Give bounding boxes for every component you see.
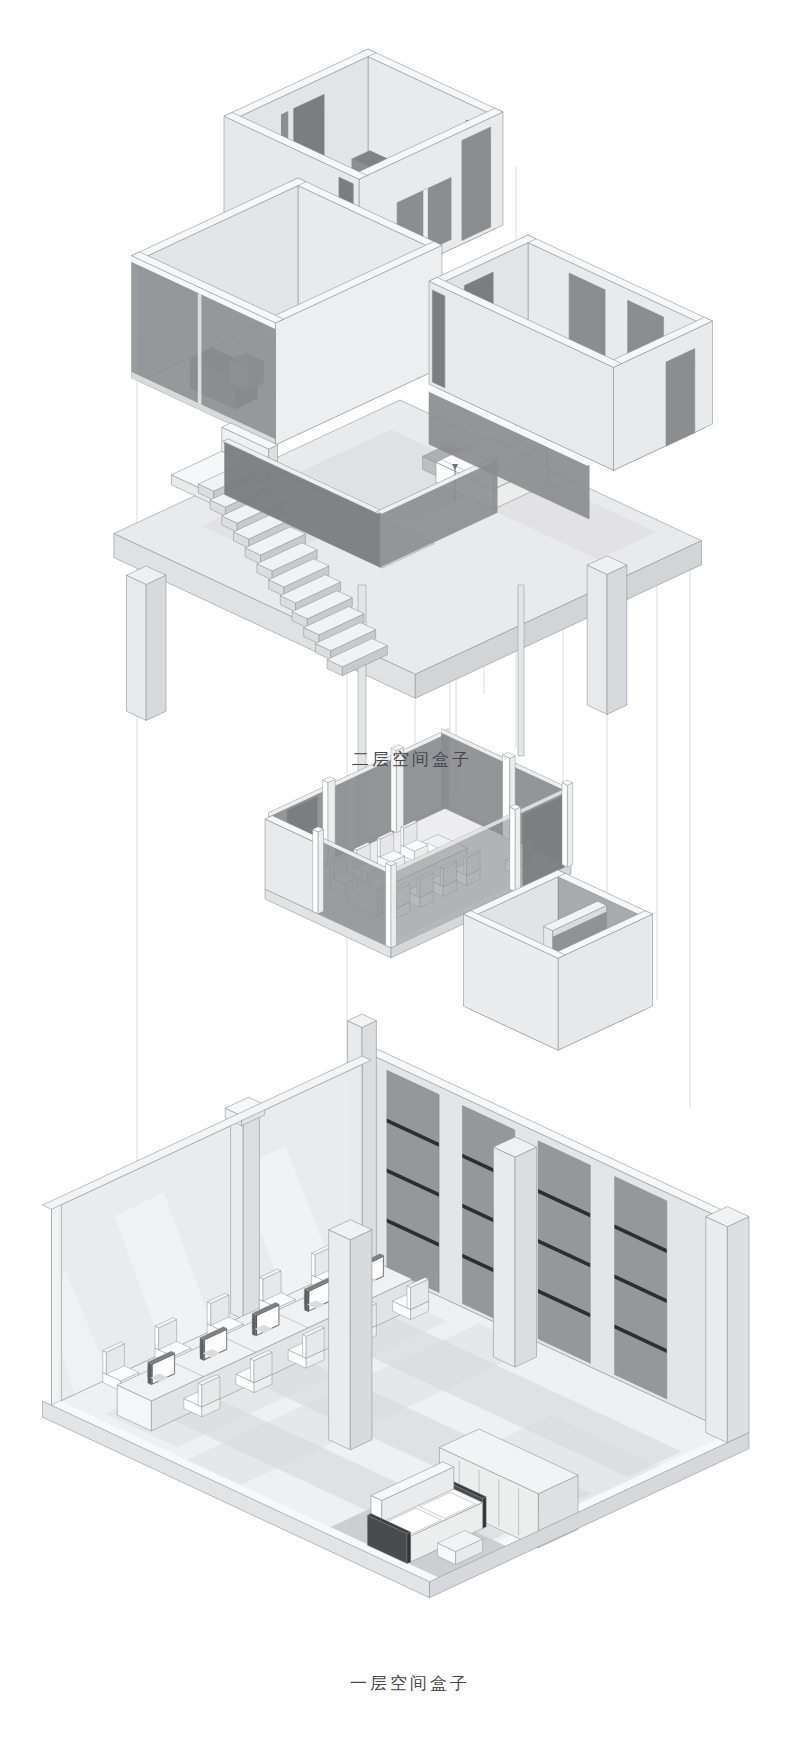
second-floor-label: 二层空间盒子 [352, 748, 472, 771]
isometric-drawing [0, 0, 800, 1744]
axonometric-exploded-diagram: 二层空间盒子 一层空间盒子 [0, 0, 800, 1744]
first-floor-label: 一层空间盒子 [350, 1672, 470, 1695]
